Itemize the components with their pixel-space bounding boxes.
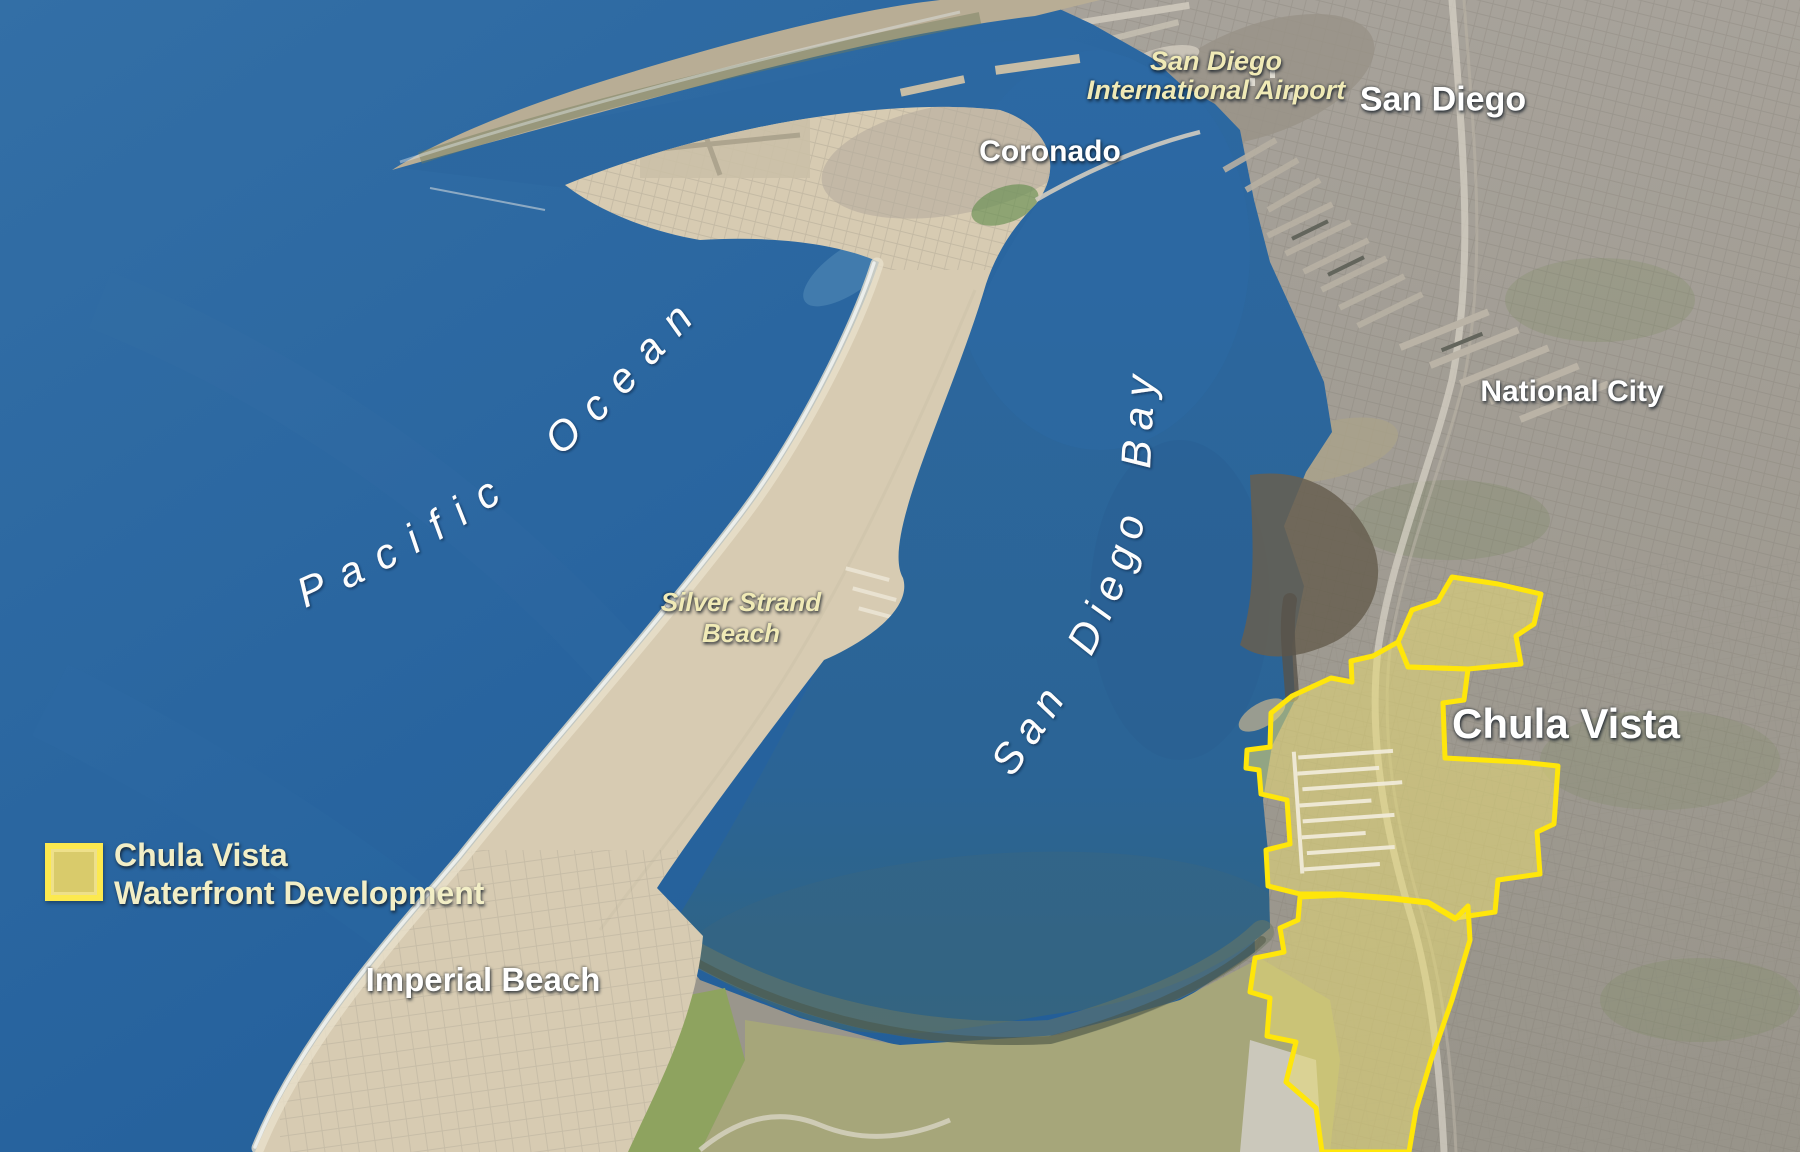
label-imperial-beach: Imperial Beach: [366, 961, 601, 999]
label-chula-vista: Chula Vista: [1452, 700, 1680, 748]
legend-line1: Chula Vista: [114, 836, 484, 874]
legend-swatch: [45, 843, 103, 901]
legend: Chula Vista Waterfront Development: [114, 836, 484, 912]
aerial-map: Pacific Ocean San Diego Bay San Diego In…: [0, 0, 1800, 1152]
label-silver-strand-beach: Silver Strand Beach: [661, 587, 821, 649]
label-san-diego: San Diego: [1360, 81, 1526, 120]
silver-strand-label-line2: Beach: [661, 618, 821, 649]
airport-label-line1: San Diego: [1087, 47, 1346, 76]
label-coronado: Coronado: [979, 135, 1121, 169]
legend-line2: Waterfront Development: [114, 874, 484, 912]
map-graphics: Pacific Ocean San Diego Bay: [0, 0, 1800, 1152]
silver-strand-label-line1: Silver Strand: [661, 587, 821, 618]
label-san-diego-international-airport: San Diego International Airport: [1087, 47, 1346, 105]
label-national-city: National City: [1480, 375, 1663, 409]
airport-label-line2: International Airport: [1087, 76, 1346, 105]
